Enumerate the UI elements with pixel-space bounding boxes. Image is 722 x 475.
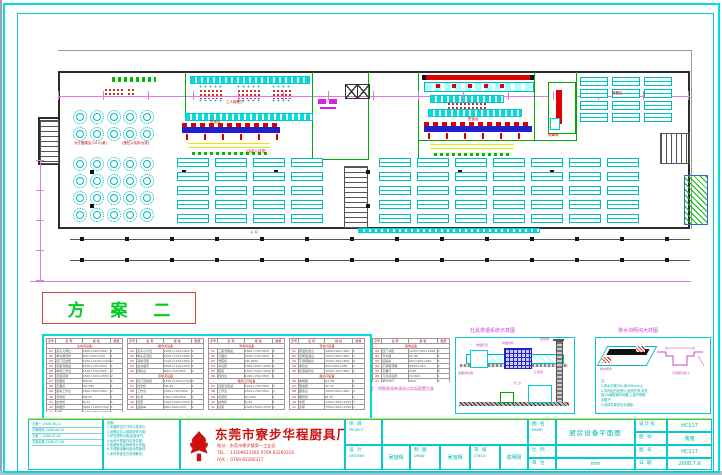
buffet-table [126, 87, 136, 97]
round-table [90, 191, 104, 205]
banquet-strip [190, 76, 310, 84]
equipment-cell: 冰柜 [56, 409, 83, 412]
equipment-table: 序号名 称规 格数量主食间设备01双头大锅灶1800×900×800102单头矮… [46, 338, 123, 412]
dim-tick [36, 220, 44, 221]
equipment-cell: 1450×1100×1920 [163, 379, 191, 384]
dining-table [455, 214, 487, 223]
dim-tick [36, 280, 44, 281]
east-stair [660, 133, 690, 164]
equipment-cell: 2400×1150×800 [163, 349, 191, 354]
dining-table [379, 186, 411, 195]
round-table [107, 174, 121, 188]
equipment-cell: 1500×500×1550 [325, 404, 353, 409]
name-label-cell: 图 名 NAME: [528, 419, 556, 445]
checker-name: 成明阳 [500, 445, 528, 470]
equipment-cell: 1220×1100×1920 [82, 359, 110, 364]
porch-wall [38, 117, 59, 119]
dining-table [215, 186, 247, 195]
round-table [123, 110, 137, 124]
column [620, 258, 624, 262]
plan-label-staff_hall: 工人就餐厅 [226, 101, 244, 105]
vip-table [271, 88, 293, 99]
dining-table [531, 214, 563, 223]
round-table [123, 157, 137, 171]
column [350, 258, 354, 262]
se-stair [684, 175, 708, 225]
worktable-row [428, 109, 522, 117]
equipment-cell: 1800×900×800 [82, 349, 110, 354]
dining-table [291, 200, 323, 209]
plan-label-entry_mid: (由此入口进) [246, 150, 266, 154]
equipment-table: 序号名 称规 格数量售饭间设备01保温售饭台1800×900×800402汤粥保… [289, 338, 365, 412]
project-label-cell: 项 目 PROJECT: [345, 419, 382, 445]
dim-tick [238, 91, 239, 100]
dim-tick [283, 91, 284, 100]
queue-line [188, 143, 270, 148]
drain-iso-label: 排水明沟 [600, 368, 612, 371]
stove-body [528, 385, 552, 403]
queue-green [434, 153, 510, 156]
equipment-cell: 11 [290, 404, 299, 409]
vip-table [198, 88, 222, 99]
dining-table [291, 186, 323, 195]
dining-table [531, 158, 563, 167]
column [305, 237, 309, 241]
dining-table [455, 172, 487, 181]
terrace-line [70, 239, 690, 240]
equipment-cell: 2 [191, 404, 203, 409]
column [80, 237, 84, 241]
west-stair [40, 120, 59, 164]
equipment-cell: 13 [47, 409, 56, 412]
round-table [123, 174, 137, 188]
category-label-cell: 图 别 [635, 432, 667, 445]
round-table [73, 110, 87, 124]
equipment-cell: 1 [353, 404, 365, 409]
equipment-table: 序号名 称规 格数量其他设备01四门冰柜1220×760×1950202开水器K… [372, 338, 450, 382]
equipment-table: 序号名 称规 格数量副食间设备01双头小炒灶2400×1150×800202单头… [127, 338, 204, 412]
detail-a-label: 防雨帽 [540, 338, 549, 341]
dining-table [644, 89, 672, 98]
column [665, 237, 669, 241]
round-table [140, 127, 154, 141]
round-table [73, 157, 87, 171]
column [485, 258, 489, 262]
dining-table [580, 101, 608, 110]
revision-lines: 方案一 2008.06.12方案修改 2008.06.25方案二 2008.07… [32, 422, 102, 446]
titleblock-notes: 说明:1.本图所注尺寸均以毫米计;2.设备定位以现场放样为准;3.炉灶燃料为柴油… [107, 421, 179, 456]
equipment-cell: 1380×650×1900 [244, 364, 272, 369]
equipment-cell: 1800×800×800 [82, 389, 110, 394]
equipment-cell: 1500×500×1800 [244, 369, 272, 374]
dining-table [569, 214, 601, 223]
equipment-table: 序号名 称规 格数量洗消间设备01三星洗刷盆1800×700×800202污碟台… [208, 338, 285, 412]
column [395, 258, 399, 262]
plan-label-serving_right: 售饭台 [468, 118, 479, 122]
round-table [123, 127, 137, 141]
design-label-en: DESIGNE: [349, 454, 381, 458]
unit-label: 单 位 [532, 461, 555, 467]
core-stair [344, 166, 368, 228]
stool [500, 392, 514, 403]
detail-a-title: 灶具排烟系统示意图 [470, 327, 515, 334]
scheme-title: 方 案 二 [58, 296, 181, 321]
dining-table [493, 214, 525, 223]
rain-cap [553, 339, 564, 341]
check-label-en: CHECK: [474, 454, 499, 458]
sheet-no: HC117 [667, 445, 712, 458]
scale-label-cell: 比 例 [528, 445, 556, 458]
draw-label-en: DRAW: [414, 454, 439, 458]
column [620, 237, 624, 241]
date-label-cell: 日 期 [635, 458, 667, 470]
dining-table [215, 214, 247, 223]
equipment-cell: 1200×1150×800 [163, 354, 191, 359]
equipment-cell: 1200×760×1950 [325, 399, 353, 404]
dim-tick [36, 250, 44, 251]
dining-table [493, 200, 525, 209]
column [485, 237, 489, 241]
design-no: HC117 [667, 419, 712, 432]
column [80, 258, 84, 262]
equipment-cell: 1500×700×800 [325, 359, 353, 364]
equipment-cell: 1500×700×800 [82, 369, 110, 374]
scheme-title-box: 方 案 二 [42, 292, 196, 324]
equip-red [468, 84, 472, 88]
cad-drawing-sheet: 大厅圆桌区(10人/桌)(摆位以实际为准)工人就餐厅(由此入口进)售饭台售饭台消… [0, 0, 722, 475]
scale-label: 比 例 [532, 448, 555, 454]
equipment-cell: 运输车 [137, 404, 164, 409]
round-table [107, 208, 121, 222]
round-table [90, 208, 104, 222]
dining-table [379, 214, 411, 223]
dining-table [644, 77, 672, 86]
column [440, 258, 444, 262]
equipment-table-grid: 序号名 称规 格数量售饭间设备01保温售饭台1800×900×800402汤粥保… [289, 338, 365, 410]
drain-section-profile [654, 342, 706, 372]
dining-table [417, 214, 449, 223]
dining-table [177, 200, 209, 209]
equipment-cell: 1500×700×800 [244, 389, 272, 394]
dining-table [177, 172, 209, 181]
design-no-label-cell: 设计号 [635, 419, 667, 432]
equipment-cell: 1220×760×1950 [409, 349, 437, 354]
dining-table [291, 214, 323, 223]
dining-table [253, 172, 285, 181]
round-table [140, 208, 154, 222]
partition [418, 72, 419, 158]
stove-cap [422, 75, 426, 80]
buffet-table [103, 87, 123, 97]
company-name: 东莞市寮步华程厨具厂 [215, 424, 345, 443]
dim-tick [328, 91, 329, 100]
round-table [107, 110, 121, 124]
round-table [73, 174, 87, 188]
fan-box [504, 348, 532, 369]
round-table [73, 191, 87, 205]
dining-table [291, 158, 323, 167]
plan-label-serving_left: 售饭台 [210, 121, 221, 125]
dining-table [607, 214, 639, 223]
equipment-cell: 1500×500×1550 [82, 374, 110, 379]
dining-table [253, 186, 285, 195]
equipment-cell: 30W [409, 379, 437, 382]
equipment-cell: 1800×800×800 [325, 389, 353, 394]
dining-table [177, 186, 209, 195]
plan-label-disinfect: 消毒间 [548, 134, 559, 138]
detail-b-title: 排水沟明沟大样图 [618, 327, 658, 334]
plan-label-entrance: 入 口 [250, 231, 258, 235]
equipment-cell: 1200×700×800 [244, 384, 272, 389]
detail-a-label: 止回阀 [534, 371, 543, 374]
column [366, 204, 370, 208]
dining-table [253, 214, 285, 223]
dining-table [607, 186, 639, 195]
name-label-en: NAME: [532, 428, 555, 432]
equipment-cell: 货架 [299, 404, 325, 409]
company-address: 地址：东莞市寮步镇第一工业区 [217, 442, 294, 449]
equipment-cell: 1800×700×800 [244, 349, 272, 354]
partition [534, 72, 535, 140]
dining-table [607, 172, 639, 181]
drain-notes-line: 1.排水沟宽300,深250(mm); [601, 384, 648, 389]
dining-table [493, 172, 525, 181]
project-value-cell [382, 419, 528, 445]
drain-section-label: 不锈钢沟篦子 [672, 372, 690, 375]
equipment-cell: 1000×700×800 [244, 374, 272, 379]
dining-table [177, 158, 209, 167]
dining-table [417, 200, 449, 209]
equipment-cell: 07 [373, 379, 382, 382]
glass-wall [358, 228, 540, 233]
column [215, 258, 219, 262]
round-table [107, 127, 121, 141]
dim-tick [688, 91, 689, 100]
round-table [90, 174, 104, 188]
buffet-line [112, 77, 156, 82]
equipment-caption: 注：明细表如有改动以实际配置为准 [370, 386, 434, 392]
dining-table [569, 186, 601, 195]
chair-row [271, 99, 293, 102]
draw-label-cell: 制 图 DRAW: [410, 445, 440, 470]
dining-table [177, 214, 209, 223]
equipment-cell: 5400×1100×500 [163, 364, 191, 369]
dim-tick [373, 91, 374, 100]
column [90, 204, 94, 208]
column [125, 237, 129, 241]
dim-tick [36, 160, 44, 161]
column [305, 258, 309, 262]
notes-block: 说明:1.本图所注尺寸均以毫米计;2.设备定位以现场放样为准;3.炉灶燃料为柴油… [103, 419, 180, 470]
drawing-name: 厨房设备平面图 [556, 419, 635, 445]
column [170, 237, 174, 241]
dining-table [644, 113, 672, 122]
dim-line-bottom [30, 281, 691, 282]
dim-tick [58, 91, 59, 100]
counter-legs [186, 134, 278, 140]
dining-table [580, 113, 608, 122]
burner-row [446, 101, 488, 109]
check-label-cell: 审 核 CHECK: [470, 445, 500, 470]
dining-table [291, 172, 323, 181]
column [530, 237, 534, 241]
project-label-en: PROJECT: [349, 428, 381, 432]
dining-table [531, 172, 563, 181]
equipment-cell: 1100×1150×800 [163, 359, 191, 364]
round-table [140, 110, 154, 124]
round-table [73, 208, 87, 222]
company-tel: TEL ：13509611282 0769 83260316 [217, 449, 294, 456]
sheet-no-label-cell: 图 号 [635, 445, 667, 458]
dining-table [215, 200, 247, 209]
equip-red [436, 84, 440, 88]
equipment-table-grid: 序号名 称规 格数量其他设备01四门冰柜1220×760×1950202开水器K… [372, 338, 450, 382]
drafter-name: 吴旭辉 [440, 445, 470, 470]
category-label: 图 别 [639, 435, 666, 441]
equipment-cell: 2 [272, 404, 284, 409]
dim-tick [36, 190, 44, 191]
drain-notes-line: 3.具体位置详见平面图。 [601, 403, 648, 408]
equipment-table-grid: 序号名 称规 格数量洗消间设备01三星洗刷盆1800×700×800202污碟台… [208, 338, 285, 410]
column [125, 258, 129, 262]
equipment-cell: 1200×700×800 [82, 364, 110, 369]
north-wall [58, 71, 690, 73]
dining-table [580, 77, 608, 86]
round-table [90, 157, 104, 171]
terrace-edge [70, 260, 690, 261]
equipment-cell: 货架 [218, 404, 245, 409]
equip-red [484, 84, 488, 88]
design-label-cell: 设 计 DESIGNE: [345, 445, 382, 470]
unit-label-cell: 单 位 [528, 458, 556, 470]
sheet-no-label: 图 号 [639, 448, 666, 454]
partition [418, 140, 577, 141]
company-fax: FAX ：0769 83260317 [217, 456, 294, 463]
dining-table [215, 158, 247, 167]
equipment-cell: 1500×500×1550 [163, 399, 191, 404]
equipment-cell: 1800×900×800 [325, 349, 353, 354]
company-logo [186, 429, 212, 463]
date-label: 日 期 [639, 461, 666, 467]
equipment-cell: 11 [209, 404, 218, 409]
unit-value: mm [556, 458, 635, 470]
rev-lines-line: 方案定稿 2008.07.06 [32, 440, 102, 446]
date-value: 2008.7.6 [667, 458, 712, 470]
column [530, 258, 534, 262]
designer-name: 吴旭辉 [382, 445, 410, 470]
dining-table [531, 200, 563, 209]
dining-table [253, 200, 285, 209]
round-table [73, 127, 87, 141]
dining-table [612, 77, 640, 86]
equip-row [424, 82, 534, 92]
dining-table [417, 172, 449, 181]
equipment-cell: 1200×900×800 [325, 354, 353, 359]
serving-counter [182, 127, 280, 133]
canopy-line [58, 50, 692, 51]
service-counter [185, 113, 313, 121]
detail-b-box: 排水明沟 不锈钢沟篦子 注:1.排水沟宽300,深250(mm);2.沟内贴白色… [595, 337, 711, 414]
dining-table [493, 186, 525, 195]
dining-table [612, 113, 640, 122]
detail-a-label: 灶 台 [514, 382, 521, 385]
dim-tick [553, 91, 554, 100]
drain-end-hatch [602, 357, 611, 363]
toilet-fixture [318, 99, 326, 104]
column [215, 237, 219, 241]
detail-a-label: 排烟风机 [502, 342, 514, 345]
dim-tick [148, 91, 149, 100]
equip-red [500, 84, 504, 88]
partition [576, 72, 577, 140]
dining-table [612, 101, 640, 110]
stove-line [424, 75, 532, 80]
dining-table [455, 158, 487, 167]
dining-table [379, 158, 411, 167]
dining-table [580, 89, 608, 98]
dining-table [607, 200, 639, 209]
column [440, 237, 444, 241]
sink [550, 118, 560, 130]
equipment-cell: 1200×700×800 [244, 354, 272, 359]
equip-red [452, 84, 456, 88]
plan-label-hall_note1: 大厅圆桌区(10人/桌) [74, 142, 107, 146]
detail-a-label: 油烟净化器 [458, 372, 473, 375]
plan-label-ne_area: 就餐区 [612, 92, 623, 96]
column [170, 258, 174, 262]
dining-table [253, 158, 285, 167]
dining-table [644, 101, 672, 110]
dim-tick [103, 91, 104, 100]
round-table [123, 191, 137, 205]
round-table [140, 174, 154, 188]
equipment-cell: 紫外线灯 [382, 379, 409, 382]
dining-table [569, 172, 601, 181]
dim-tick [508, 91, 509, 100]
dim-tick [418, 91, 419, 100]
revision-block: 方案一 2008.06.12方案修改 2008.06.25方案二 2008.07… [28, 419, 103, 470]
dining-table [417, 158, 449, 167]
column [90, 170, 94, 174]
toilet-fixture [329, 99, 337, 104]
counter-legs [428, 133, 528, 139]
dining-table [379, 172, 411, 181]
dim-tick [463, 91, 464, 100]
round-table [90, 127, 104, 141]
round-table [123, 208, 137, 222]
round-table [140, 191, 154, 205]
column [350, 237, 354, 241]
purifier-box [470, 350, 488, 368]
equipment-cell: 6 [437, 379, 449, 382]
company-contact: 地址：东莞市寮步镇第一工业区 TEL ：13509611282 0769 832… [217, 442, 294, 463]
column [575, 237, 579, 241]
dim-tick [193, 91, 194, 100]
dining-table [569, 200, 601, 209]
equipment-table-grid: 序号名 称规 格数量副食间设备01双头小炒灶2400×1150×800202单头… [127, 338, 204, 410]
round-table [90, 110, 104, 124]
drain-notes: 注:1.排水沟宽300,深250(mm);2.沟内贴白色瓷片,面须光滑,沟底 找… [601, 379, 648, 408]
round-table [107, 157, 121, 171]
dining-table [455, 186, 487, 195]
design-no-label: 设计号 [639, 422, 666, 428]
tb-notes-line: 7.未尽事宜双方协商解决。 [107, 452, 179, 456]
detail-a-box: 油烟净化器 排烟风机 防雨帽 排烟管道 止回阀 灶 台 [455, 337, 575, 414]
chimney [556, 341, 563, 406]
dining-table [417, 186, 449, 195]
equipment-cell: 11 [128, 404, 137, 409]
drain-end-hatch [636, 346, 645, 352]
